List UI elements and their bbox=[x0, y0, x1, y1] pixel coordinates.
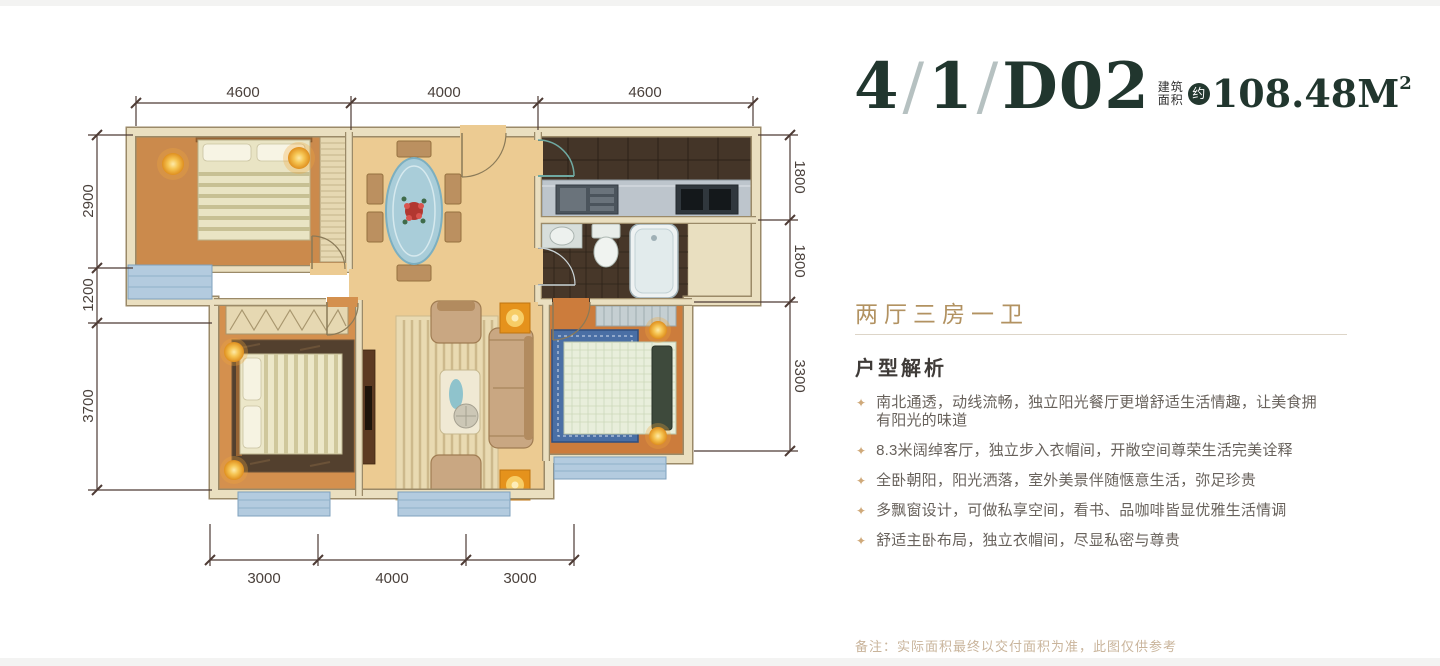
dim-right-3: 3300 bbox=[791, 359, 808, 392]
unit-title-block: 4/1/D02 建筑 面积 约 108.48M2 bbox=[854, 58, 1412, 117]
area-unit: M bbox=[1357, 71, 1399, 116]
layout-type-title: 两厅三房一卫 bbox=[855, 295, 1029, 329]
diamond-bullet-icon: ✦ bbox=[856, 472, 866, 490]
floorplan-drawing: 4600 4000 4600 3000 4000 3000 2900 1200 … bbox=[0, 0, 840, 666]
diamond-bullet-icon: ✦ bbox=[856, 502, 866, 520]
section-divider bbox=[855, 334, 1347, 335]
feature-item: ✦ 全卧朝阳，阳光洒落，室外美景伴随惬意生活，弥足珍贵 bbox=[856, 472, 1326, 490]
dim-left-2: 1200 bbox=[80, 278, 97, 311]
dim-right-1: 1800 bbox=[791, 160, 808, 193]
area-label-line2: 面积 bbox=[1158, 94, 1184, 107]
unit-code-part: 4 bbox=[854, 49, 900, 124]
unit-code-part: 1 bbox=[928, 49, 974, 124]
dim-left-3: 3700 bbox=[80, 389, 97, 422]
area-value: 108.48M2 bbox=[1212, 75, 1412, 113]
diamond-bullet-icon: ✦ bbox=[856, 394, 866, 412]
diamond-bullet-icon: ✦ bbox=[856, 532, 866, 550]
analysis-section-title: 户型解析 bbox=[855, 352, 947, 381]
feature-text: 8.3米阔绰客厅，独立步入衣帽间，开敞空间尊荣生活完美诠释 bbox=[876, 442, 1293, 460]
area-number: 108.48 bbox=[1212, 71, 1357, 116]
area-cluster: 建筑 面积 约 108.48M2 bbox=[1158, 75, 1412, 113]
dim-left-1: 2900 bbox=[80, 184, 97, 217]
unit-code-slash: / bbox=[900, 50, 929, 124]
area-label: 建筑 面积 bbox=[1158, 81, 1184, 107]
approx-badge: 约 bbox=[1188, 83, 1210, 105]
diamond-bullet-icon: ✦ bbox=[856, 442, 866, 460]
dim-top-1: 4600 bbox=[226, 84, 259, 101]
feature-text: 南北通透，动线流畅，独立阳光餐厅更增舒适生活情趣，让美食拥有阳光的味道 bbox=[876, 394, 1326, 430]
unit-code: 4/1/D02 bbox=[854, 58, 1150, 117]
bedroom2-furniture bbox=[220, 306, 354, 484]
feature-list: ✦ 南北通透，动线流畅，独立阳光餐厅更增舒适生活情趣，让美食拥有阳光的味道 ✦ … bbox=[856, 394, 1326, 562]
feature-item: ✦ 南北通透，动线流畅，独立阳光餐厅更增舒适生活情趣，让美食拥有阳光的味道 bbox=[856, 394, 1326, 430]
feature-item: ✦ 多飘窗设计，可做私享空间，看书、品咖啡皆显优雅生活情调 bbox=[856, 502, 1326, 520]
dim-top-3: 4600 bbox=[628, 84, 661, 101]
dim-bottom-2: 4000 bbox=[375, 570, 408, 587]
kitchen-counter bbox=[542, 180, 754, 218]
unit-code-slash: / bbox=[974, 50, 1003, 124]
area-label-line1: 建筑 bbox=[1158, 81, 1184, 94]
area-superscript: 2 bbox=[1399, 73, 1412, 94]
feature-text: 多飘窗设计，可做私享空间，看书、品咖啡皆显优雅生活情调 bbox=[876, 502, 1286, 520]
dim-top-2: 4000 bbox=[427, 84, 460, 101]
unit-code-part: D02 bbox=[1002, 49, 1150, 124]
dim-right-2: 1800 bbox=[791, 244, 808, 277]
dim-bottom-3: 3000 bbox=[503, 570, 536, 587]
disclaimer-note: 备注：实际面积最终以交付面积为准，此图仅供参考 bbox=[855, 636, 1177, 655]
feature-item: ✦ 8.3米阔绰客厅，独立步入衣帽间，开敞空间尊荣生活完美诠释 bbox=[856, 442, 1326, 460]
feature-text: 舒适主卧布局，独立衣帽间，尽显私密与尊贵 bbox=[876, 532, 1180, 550]
feature-item: ✦ 舒适主卧布局，独立衣帽间，尽显私密与尊贵 bbox=[856, 532, 1326, 550]
dim-bottom-1: 3000 bbox=[247, 570, 280, 587]
feature-text: 全卧朝阳，阳光洒落，室外美景伴随惬意生活，弥足珍贵 bbox=[876, 472, 1256, 490]
